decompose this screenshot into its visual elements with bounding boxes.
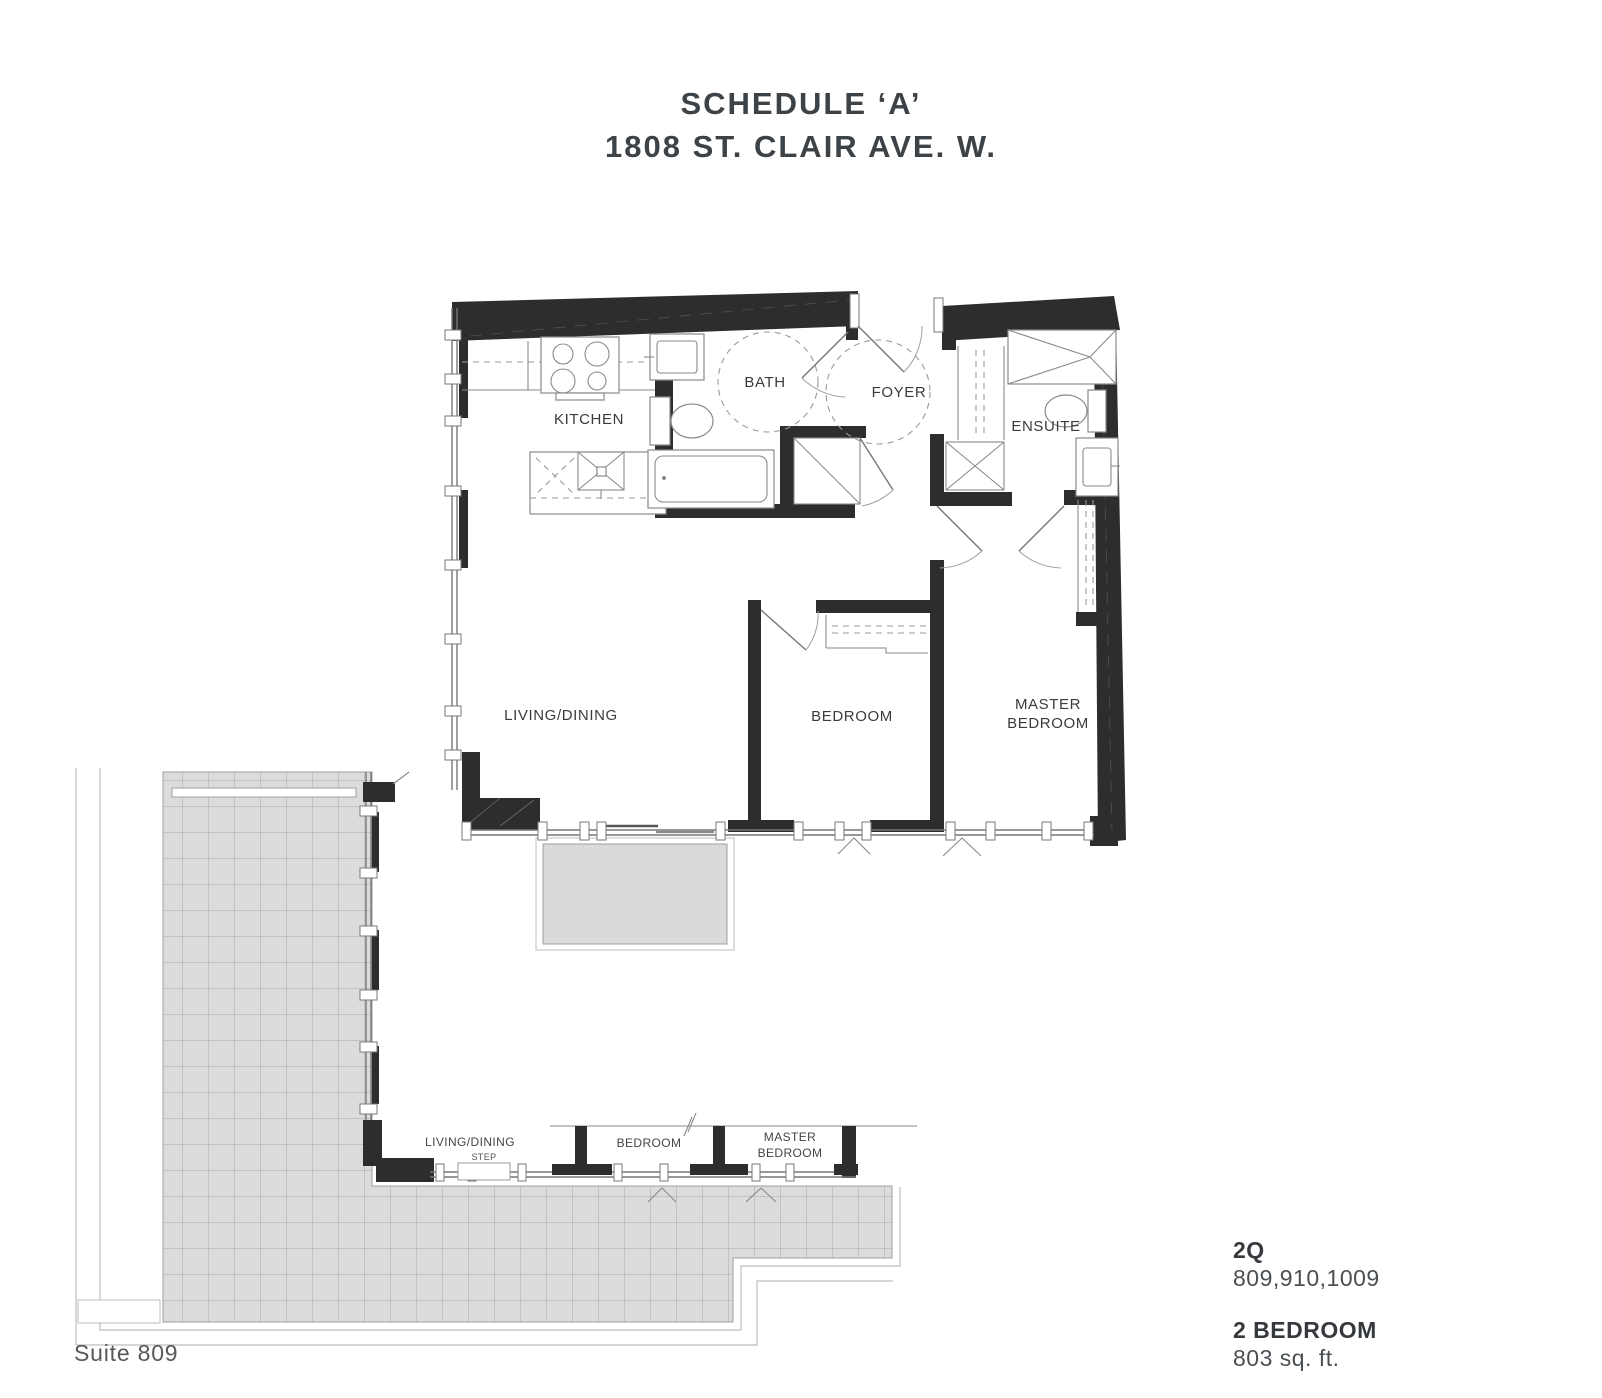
mini-living-dining-label: LIVING/DINING	[425, 1135, 515, 1149]
kitchen-island	[530, 452, 666, 514]
master-bedroom-label: BEDROOM	[1007, 715, 1089, 732]
corner-tick	[393, 772, 409, 784]
wall-bedroom-partition	[748, 600, 761, 828]
window-pier	[552, 1164, 612, 1175]
step-label: STEP	[471, 1152, 496, 1162]
bath-label: BATH	[744, 374, 785, 391]
ensuite-door-leaf	[1019, 506, 1064, 551]
window-mullion	[862, 822, 871, 840]
toilet-tank	[650, 397, 670, 445]
ensuite-label: ENSUITE	[1011, 418, 1080, 435]
mini-plan-labels: LIVING/DINING STEP BEDROOM MASTER BEDROO…	[425, 1130, 822, 1162]
window-mullion	[445, 374, 461, 384]
window-backing	[372, 930, 379, 990]
window-mullion	[580, 822, 589, 840]
stove-front	[556, 393, 604, 400]
wall-closet-left	[780, 430, 794, 510]
closet-door-leaf	[860, 438, 893, 490]
juliet-balcony-mark	[943, 838, 981, 856]
wall-corner-bottom-right	[1090, 816, 1118, 846]
window-mullion	[360, 990, 377, 1000]
terrace-tiled-area	[163, 772, 892, 1322]
mini-plan: LIVING/DINING STEP BEDROOM MASTER BEDROO…	[360, 772, 917, 1202]
window-pier	[834, 1164, 858, 1175]
unit-type: 2 BEDROOM	[1233, 1316, 1380, 1344]
ensuite-toilet-tank	[1088, 390, 1106, 432]
window-mullion	[1042, 822, 1051, 840]
bath-fixtures	[644, 332, 848, 508]
unit-model: 2Q	[1233, 1236, 1380, 1264]
break-mark	[684, 1113, 696, 1136]
closet-door-swing	[862, 490, 893, 506]
closet-shelf-line	[794, 438, 860, 504]
floor-plan-drawing: KITCHEN BATH FOYER ENSUITE LIVING/DINING…	[0, 0, 1602, 1398]
window-mullion	[462, 822, 471, 840]
kitchen-label: KITCHEN	[554, 411, 624, 428]
window-backing	[372, 1046, 379, 1104]
window-mullion	[660, 1164, 668, 1181]
foyer-label: FOYER	[872, 384, 927, 401]
window-backing	[459, 490, 468, 568]
entry-door-jamb	[850, 294, 859, 328]
balcony-floor	[543, 844, 727, 944]
window-mullion	[614, 1164, 622, 1181]
window-mullion	[445, 330, 461, 340]
unit-info: 2Q 809,910,1009 2 BEDROOM 803 sq. ft.	[1233, 1236, 1380, 1372]
window-mullion	[445, 486, 461, 496]
shower	[1008, 330, 1116, 384]
window-mullion	[946, 822, 955, 840]
wall-corner	[376, 1158, 434, 1182]
unit-suite-numbers: 809,910,1009	[1233, 1264, 1380, 1292]
window-pier	[690, 1164, 748, 1175]
window-backing	[372, 812, 379, 872]
wall-foyer-closet-stub	[942, 330, 956, 350]
bedroom-door-leaf	[761, 610, 806, 650]
mini-master-bedroom-label: BEDROOM	[758, 1146, 823, 1160]
utility-closet	[946, 346, 1004, 490]
mini-bedroom-label: BEDROOM	[617, 1136, 682, 1150]
unit-area: 803 sq. ft.	[1233, 1344, 1380, 1372]
window-mullion	[445, 416, 461, 426]
ensuite-door-swing	[1019, 551, 1061, 568]
bedroom-label: BEDROOM	[811, 708, 893, 725]
entry-door-leaf	[858, 326, 904, 372]
window-mullion	[786, 1164, 794, 1181]
window-mullion	[436, 1164, 444, 1181]
balcony	[536, 838, 734, 950]
window-mullion	[445, 560, 461, 570]
step	[458, 1163, 510, 1180]
window-mullion	[518, 1164, 526, 1181]
left-window-wall	[445, 308, 468, 790]
window-mullion	[835, 822, 844, 840]
window-mullion	[445, 706, 461, 716]
sink-drain	[597, 467, 606, 476]
toilet-bowl	[671, 404, 713, 438]
master-door-swing	[940, 551, 982, 568]
wall-closet-top	[780, 426, 866, 438]
wall-master-closet-bottom	[1076, 612, 1106, 626]
window-mullion	[794, 822, 803, 840]
window-mullion	[445, 750, 461, 760]
window-mullion	[986, 822, 995, 840]
window-mullion	[597, 822, 606, 840]
window-mullion	[716, 822, 725, 840]
terrace	[76, 768, 900, 1345]
floorplan-page: SCHEDULE ‘A’ 1808 ST. CLAIR AVE. W.	[0, 0, 1602, 1398]
bedroom-door-swing	[806, 611, 818, 650]
wall-corner-bottom-left	[462, 752, 540, 830]
master-door-leaf	[937, 506, 982, 551]
closet-shelf	[826, 648, 928, 653]
wall-master-partition	[930, 560, 944, 828]
wall-bedroom-top	[816, 600, 930, 613]
window-mullion	[1084, 822, 1093, 840]
window-mullion	[538, 822, 547, 840]
terrace-planter	[172, 788, 356, 797]
wall-wd-closet-bottom	[930, 492, 1012, 506]
suite-caption: Suite 809	[74, 1340, 178, 1367]
mini-master-bedroom-label: MASTER	[764, 1130, 816, 1144]
terrace-notch	[78, 1300, 160, 1323]
living-dining-label: LIVING/DINING	[504, 707, 618, 724]
bedroom-closet	[761, 610, 928, 653]
master-closet	[937, 500, 1093, 612]
wall-corner-top	[363, 782, 395, 802]
main-plan: KITCHEN BATH FOYER ENSUITE LIVING/DINING…	[445, 291, 1126, 856]
stove	[541, 337, 619, 393]
window-mullion	[360, 926, 377, 936]
window-mullion	[360, 1042, 377, 1052]
master-bedroom-label: MASTER	[1015, 696, 1081, 713]
ensuite-vanity	[1076, 438, 1118, 496]
tub-drain	[662, 476, 666, 480]
bath-door-swing	[802, 378, 845, 397]
window-mullion	[360, 868, 377, 878]
window-mullion	[360, 1104, 377, 1114]
window-mullion	[752, 1164, 760, 1181]
window-mullion	[360, 806, 377, 816]
window-mullion	[445, 634, 461, 644]
entry-door-jamb	[934, 298, 943, 332]
bathtub	[648, 450, 774, 508]
